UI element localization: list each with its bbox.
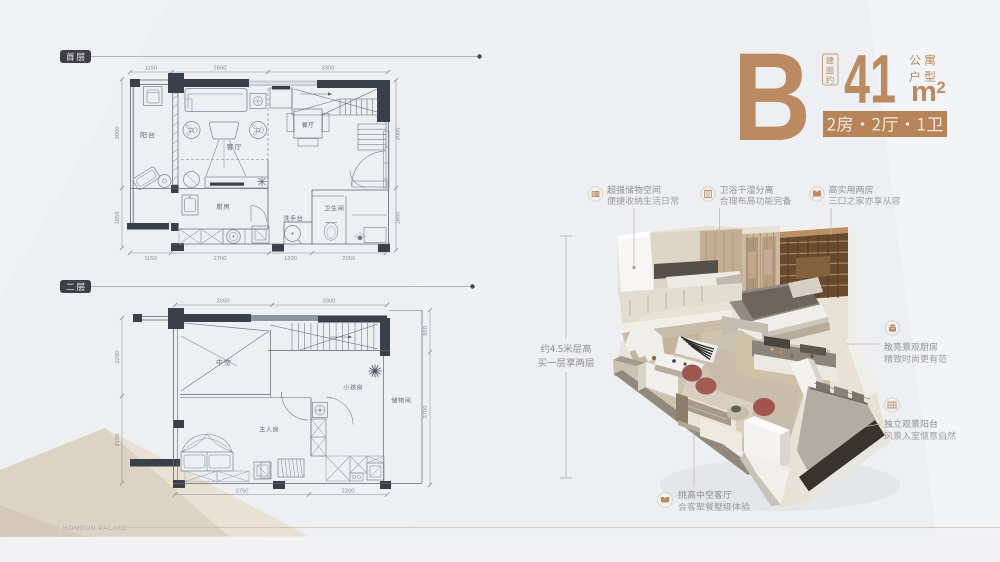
svg-text:950: 950 [423, 326, 429, 336]
svg-text:1650: 1650 [115, 212, 121, 225]
svg-text:3000: 3000 [396, 128, 402, 141]
svg-text:2150: 2150 [115, 434, 121, 447]
svg-text:3300: 3300 [322, 66, 335, 72]
svg-text:2650: 2650 [217, 299, 230, 305]
svg-text:3300: 3300 [323, 299, 336, 305]
svg-text:HOMDUN PALACE: HOMDUN PALACE [63, 525, 128, 532]
svg-text:3750: 3750 [236, 489, 249, 495]
svg-text:1150: 1150 [145, 66, 157, 72]
svg-text:3700: 3700 [423, 406, 429, 419]
svg-text:2200: 2200 [115, 351, 121, 364]
svg-text:1650: 1650 [396, 212, 402, 225]
svg-text:m: m [911, 76, 937, 108]
svg-text:2650: 2650 [214, 66, 227, 72]
svg-text:41: 41 [844, 41, 896, 118]
svg-text:1200: 1200 [284, 256, 297, 262]
svg-text:2200: 2200 [342, 489, 355, 495]
svg-text:2700: 2700 [214, 256, 227, 262]
svg-text:1150: 1150 [144, 256, 156, 262]
svg-text:3000: 3000 [115, 127, 121, 140]
svg-text:2: 2 [937, 79, 946, 97]
svg-text:B: B [733, 26, 811, 167]
svg-text:2050: 2050 [343, 256, 356, 262]
